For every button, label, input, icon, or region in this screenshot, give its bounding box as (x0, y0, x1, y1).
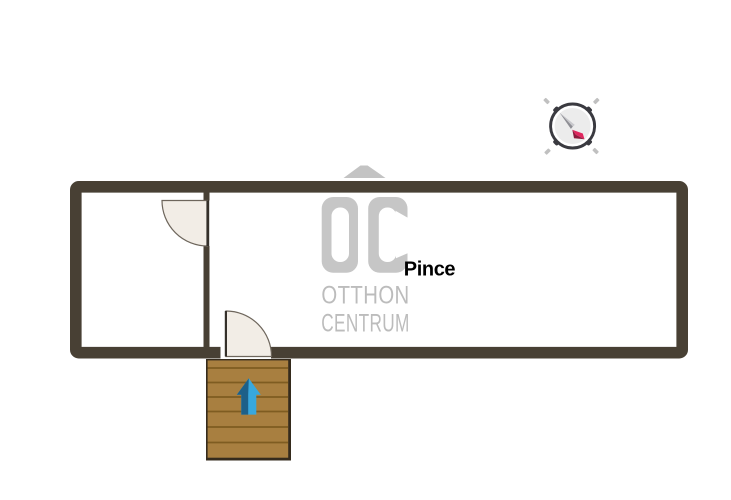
svg-text:Pince: Pince (404, 259, 456, 281)
